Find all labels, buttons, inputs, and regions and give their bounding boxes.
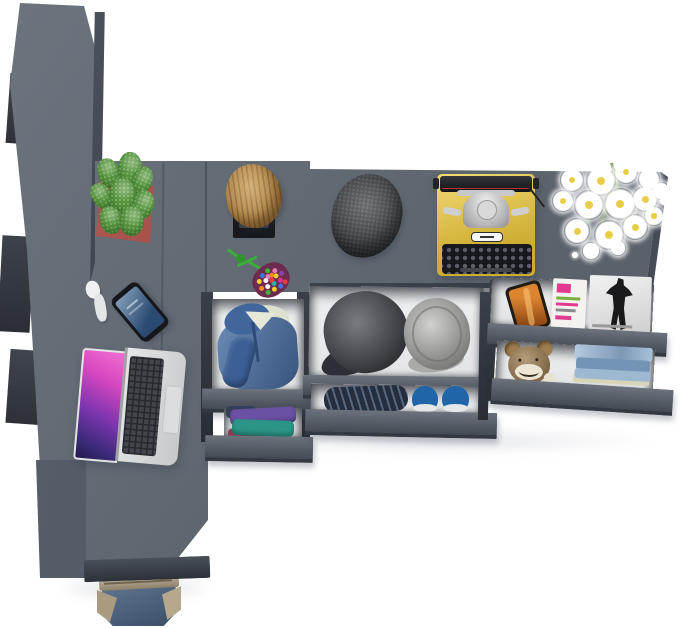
typewriter-knob — [533, 178, 539, 189]
typewriter-label — [471, 232, 503, 242]
magazine-text-line — [555, 315, 571, 320]
magazine-text-line — [592, 324, 632, 328]
daisy-flower — [614, 160, 638, 184]
daisy-flower — [600, 142, 616, 158]
sneaker — [442, 386, 469, 412]
folded-jeans-stack — [573, 342, 653, 388]
babys-breath-sprig — [648, 154, 655, 161]
babys-breath-sprig — [660, 198, 667, 205]
daisy-flower — [552, 190, 574, 212]
model-silhouette — [603, 277, 635, 330]
type-mechanism-hub — [477, 200, 497, 220]
keychain-beads — [268, 277, 275, 284]
babys-breath-sprig — [556, 154, 564, 162]
daisy-flower — [560, 168, 584, 192]
typewriter-spacebar — [460, 268, 512, 272]
daisy-flower — [578, 148, 598, 168]
typewriter-knob — [433, 178, 439, 189]
folded-shirt-teal — [232, 419, 295, 437]
type-mechanism — [463, 192, 509, 228]
babys-breath-sprig — [622, 138, 630, 146]
drawer-front — [205, 435, 313, 463]
magazine-fashion-bw — [588, 275, 652, 333]
keychain-knot — [236, 254, 245, 263]
label-text-bar — [480, 236, 494, 238]
magazine-text-line — [556, 296, 580, 300]
daisy-bouquet — [552, 138, 668, 260]
daisy-flower — [564, 218, 590, 244]
daisy-flower — [574, 190, 604, 220]
babys-breath-sprig — [662, 222, 668, 228]
daisy-flower — [644, 206, 664, 226]
sneaker — [412, 386, 438, 412]
earphone-stem — [93, 293, 109, 322]
daisy-flower — [652, 182, 670, 200]
roller-red-line — [442, 188, 530, 190]
sneaker-sole — [443, 404, 468, 412]
furniture-top-view-scene — [0, 0, 700, 628]
drawer-front — [305, 409, 498, 439]
desk-seam — [205, 162, 207, 292]
teddy-smile — [519, 366, 539, 378]
cap-seam — [409, 304, 465, 365]
babys-breath-sprig — [572, 252, 578, 258]
teddy-eye — [535, 358, 538, 361]
potted-cactus — [92, 152, 154, 244]
magazine-text-line — [556, 308, 576, 312]
typewriter — [437, 174, 535, 276]
daisy-flower — [582, 242, 600, 260]
laptop — [73, 342, 187, 469]
magazine-pink — [551, 278, 588, 330]
teddy-eye — [518, 359, 521, 362]
typewriter-keyboard — [442, 244, 532, 274]
bead-keychain — [224, 248, 294, 300]
magazine-text-line — [556, 302, 578, 306]
cabinet-bottom-edge — [84, 556, 211, 582]
magazine-title-block — [557, 283, 571, 293]
daisy-flower — [610, 240, 626, 256]
